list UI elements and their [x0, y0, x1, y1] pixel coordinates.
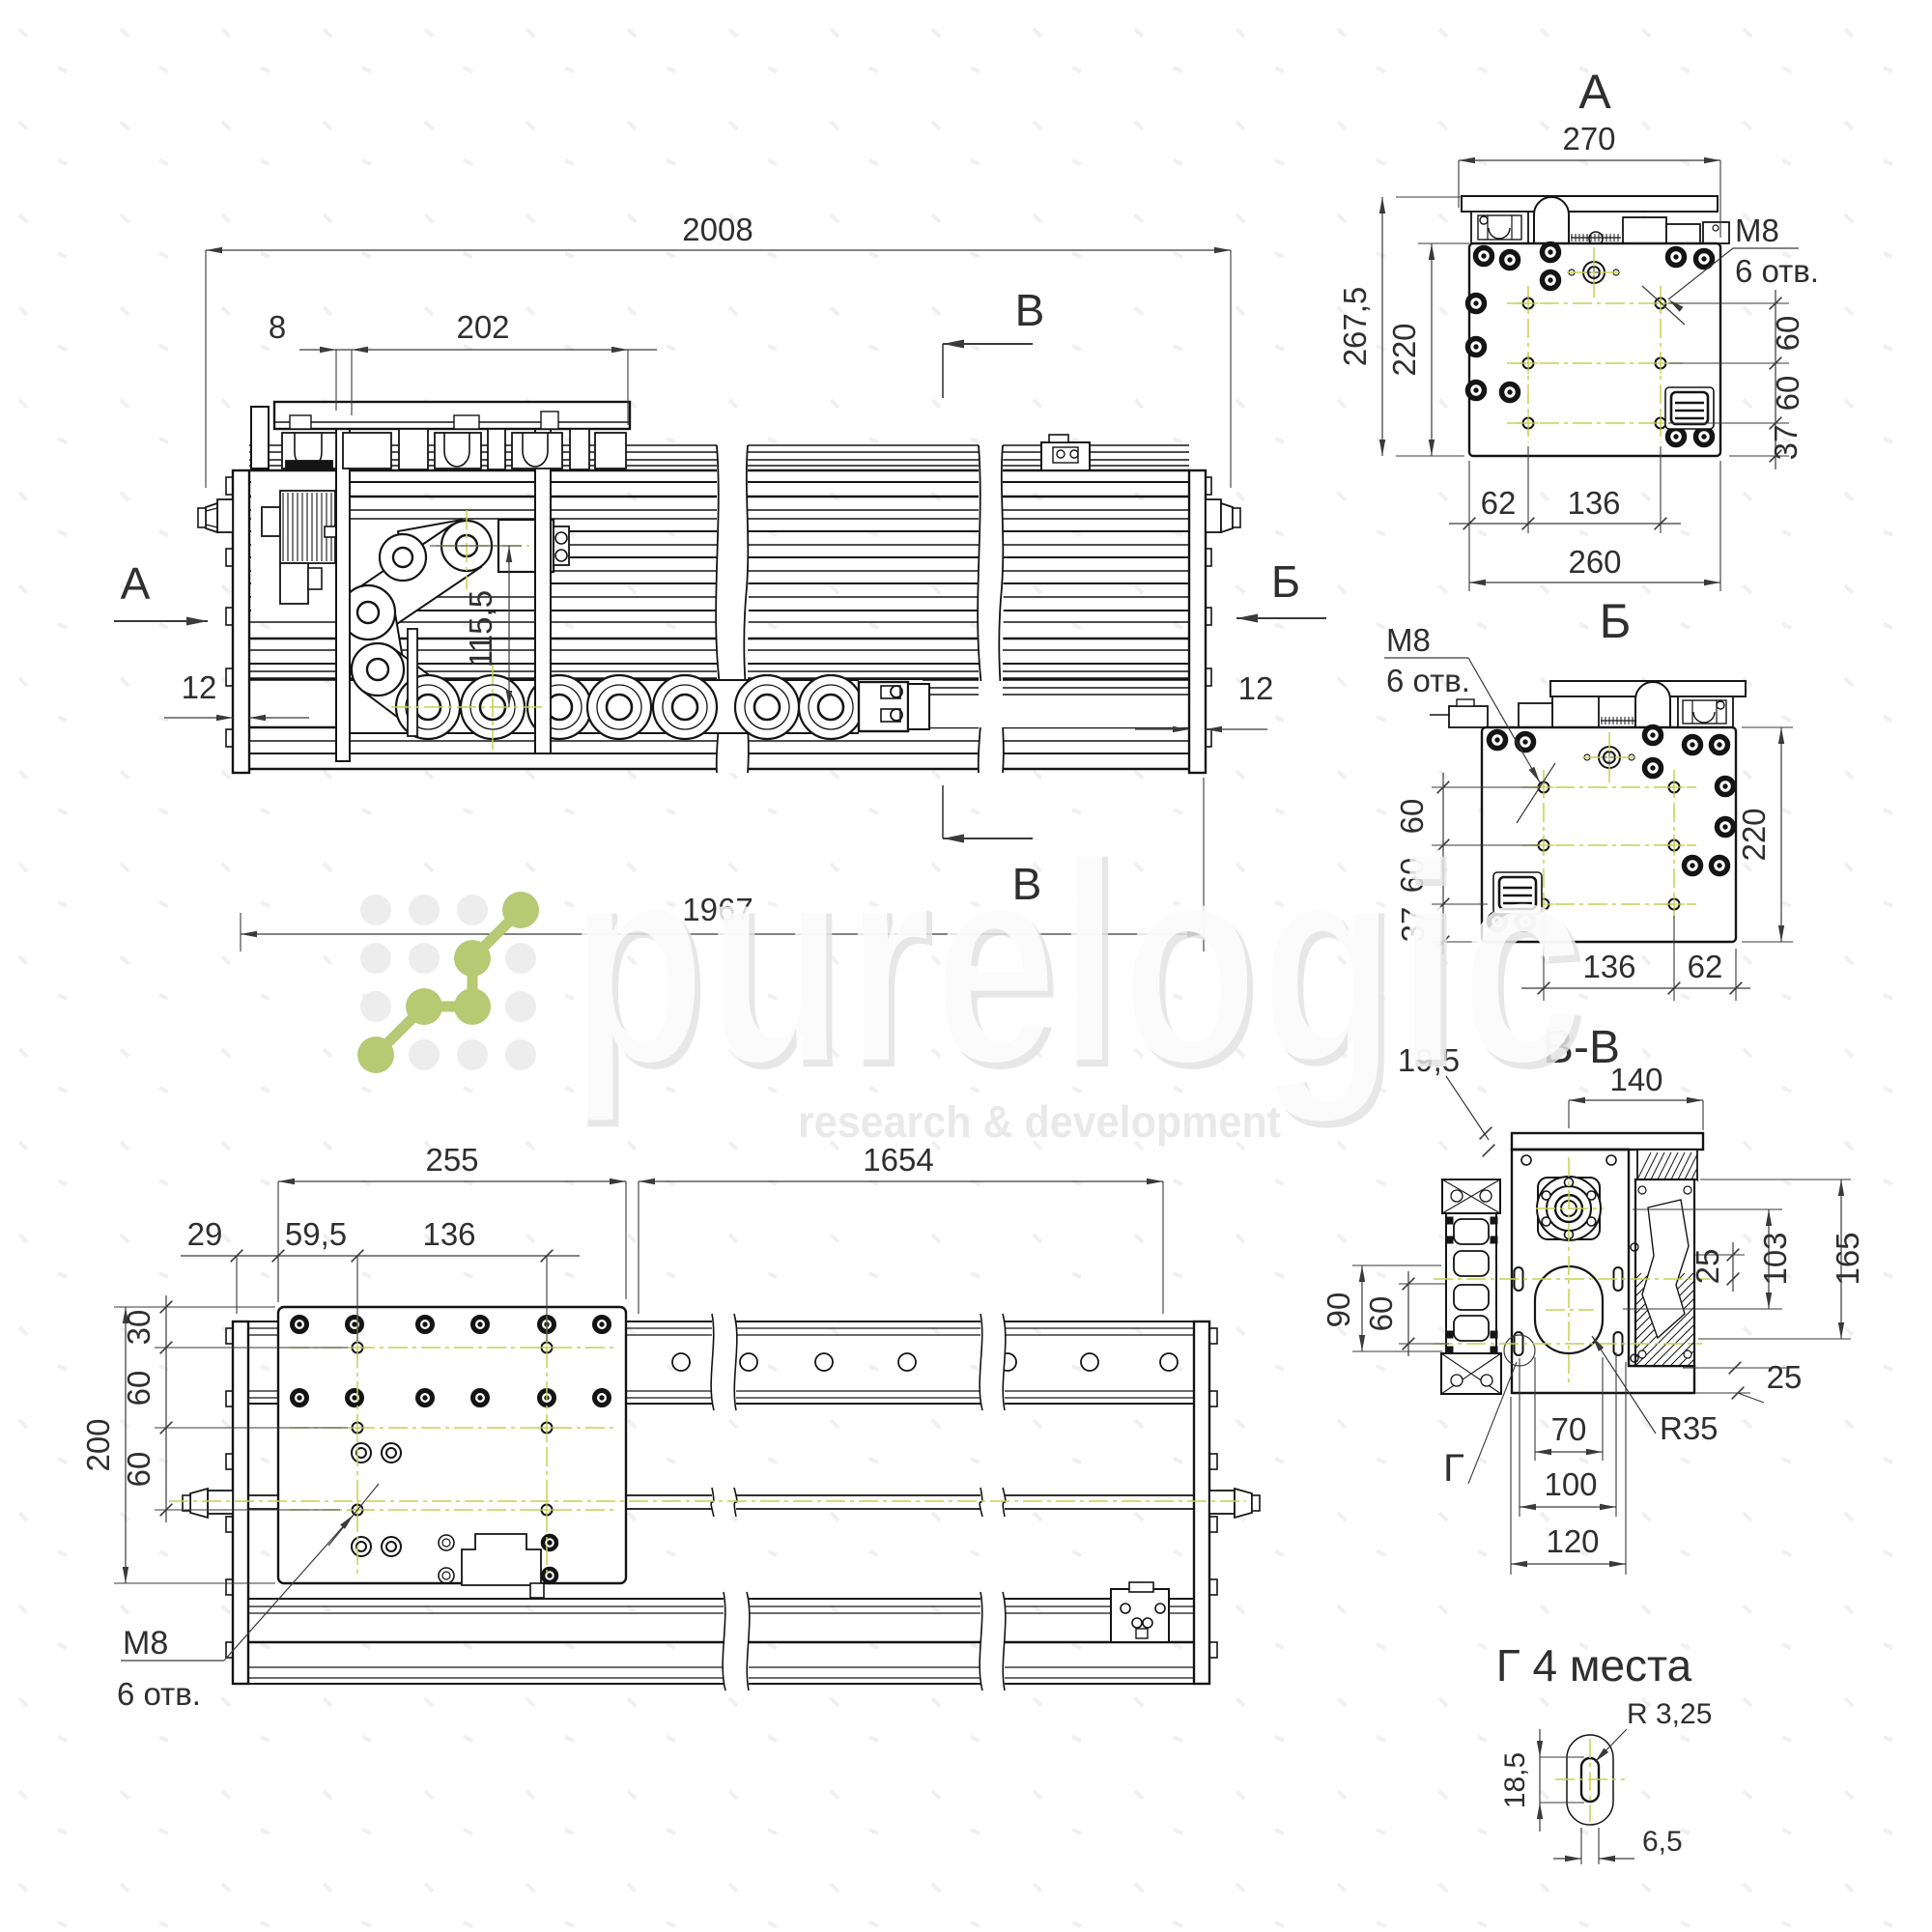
svg-text:202: 202 — [456, 309, 509, 345]
svg-text:165: 165 — [1830, 1232, 1865, 1285]
svg-text:6 отв.: 6 отв. — [1386, 663, 1470, 698]
svg-text:12: 12 — [182, 669, 217, 705]
svg-text:136: 136 — [1567, 485, 1620, 521]
svg-text:Б: Б — [1271, 556, 1300, 607]
svg-text:А: А — [1578, 65, 1611, 119]
svg-text:М8: М8 — [123, 1625, 168, 1662]
svg-text:25: 25 — [1690, 1249, 1725, 1285]
svg-text:В: В — [1015, 285, 1045, 335]
svg-text:70: 70 — [1551, 1411, 1587, 1447]
svg-text:100: 100 — [1544, 1466, 1597, 1502]
svg-text:140: 140 — [1609, 1062, 1662, 1097]
svg-text:60: 60 — [1363, 1296, 1399, 1332]
svg-text:29: 29 — [187, 1216, 223, 1252]
svg-text:260: 260 — [1568, 544, 1621, 580]
svg-text:220: 220 — [1386, 323, 1422, 376]
svg-text:267,5: 267,5 — [1337, 287, 1373, 367]
svg-text:90: 90 — [1321, 1293, 1356, 1328]
svg-text:6 отв.: 6 отв. — [1735, 253, 1819, 289]
svg-text:62: 62 — [1481, 485, 1517, 521]
svg-text:6,5: 6,5 — [1642, 1826, 1683, 1858]
svg-text:60: 60 — [121, 1371, 156, 1406]
svg-text:220: 220 — [1736, 808, 1772, 861]
svg-text:37: 37 — [1768, 425, 1804, 461]
svg-text:270: 270 — [1562, 121, 1615, 156]
svg-text:6 отв.: 6 отв. — [117, 1676, 201, 1712]
svg-text:255: 255 — [425, 1142, 478, 1178]
svg-text:М8: М8 — [1386, 622, 1431, 658]
svg-text:59,5: 59,5 — [285, 1216, 347, 1252]
svg-text:Г 4 места: Г 4 места — [1496, 1640, 1692, 1690]
svg-text:purelogic: purelogic — [566, 797, 1582, 1123]
svg-text:60: 60 — [1770, 316, 1805, 352]
svg-text:2008: 2008 — [682, 212, 753, 247]
svg-text:research & development: research & development — [798, 1096, 1281, 1147]
svg-text:R 3,25: R 3,25 — [1627, 1698, 1712, 1730]
svg-text:Б: Б — [1600, 594, 1632, 648]
svg-text:1654: 1654 — [863, 1142, 933, 1178]
svg-text:115,5: 115,5 — [463, 590, 498, 668]
svg-text:62: 62 — [1688, 949, 1723, 984]
svg-text:136: 136 — [1582, 949, 1635, 984]
svg-text:60: 60 — [121, 1452, 156, 1488]
svg-text:120: 120 — [1546, 1523, 1599, 1559]
svg-text:А: А — [121, 558, 151, 609]
svg-text:12: 12 — [1238, 670, 1274, 706]
svg-text:25: 25 — [1767, 1359, 1803, 1395]
svg-text:R35: R35 — [1660, 1410, 1719, 1446]
svg-text:М8: М8 — [1735, 213, 1779, 248]
svg-text:103: 103 — [1757, 1232, 1793, 1285]
svg-text:60: 60 — [1770, 376, 1805, 412]
svg-text:Г: Г — [1443, 1447, 1464, 1490]
svg-text:18,5: 18,5 — [1499, 1752, 1531, 1808]
svg-text:136: 136 — [422, 1216, 475, 1252]
svg-text:30: 30 — [121, 1310, 156, 1346]
svg-text:8: 8 — [269, 309, 286, 345]
svg-text:200: 200 — [80, 1418, 116, 1471]
